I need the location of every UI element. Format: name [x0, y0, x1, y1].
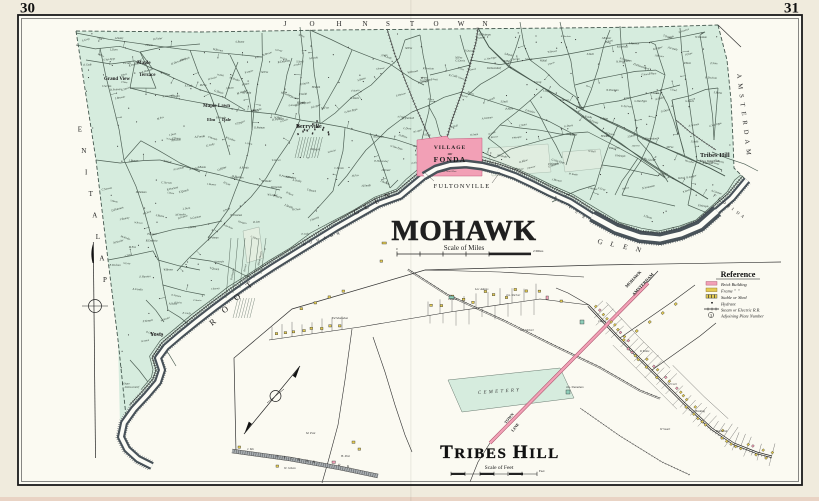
svg-text:D.Putman: D.Putman	[135, 191, 147, 194]
svg-text:Jno Shriver: Jno Shriver	[520, 328, 535, 332]
svg-text:Reference: Reference	[721, 270, 756, 279]
svg-text:Grand View: Grand View	[104, 77, 130, 82]
svg-text:A.Staley: A.Staley	[114, 37, 124, 40]
svg-text:Tribes Hill: Tribes Hill	[700, 152, 730, 159]
svg-text:J.Brower: J.Brower	[602, 37, 612, 40]
svg-text:M.Fox: M.Fox	[199, 84, 208, 87]
svg-text:Elm: Elm	[207, 117, 215, 122]
svg-text:D.Dievendorf: D.Dievendorf	[642, 137, 659, 140]
svg-text:M.Veeder: M.Veeder	[261, 180, 273, 183]
svg-text:FULTONVILLE: FULTONVILLE	[434, 183, 491, 190]
svg-text:Maple Lawn: Maple Lawn	[203, 104, 230, 109]
svg-text:C.Serven: C.Serven	[102, 85, 112, 88]
svg-text:A: A	[99, 255, 104, 263]
svg-text:W.Hall: W.Hall	[251, 110, 258, 113]
svg-text:D.Putman: D.Putman	[207, 237, 219, 240]
svg-text:TRIBES HILL: TRIBES HILL	[440, 442, 560, 463]
svg-text:S.Banta: S.Banta	[198, 166, 207, 169]
svg-text:Scale of Miles: Scale of Miles	[444, 244, 485, 252]
svg-text:N: N	[362, 20, 367, 28]
svg-text:J Plank: J Plank	[448, 297, 458, 301]
svg-text:M. Post: M. Post	[305, 431, 315, 435]
svg-text:A.Staley: A.Staley	[168, 303, 178, 306]
svg-text:J: J	[284, 20, 287, 28]
svg-text:See Detail Plan: See Detail Plan	[702, 160, 720, 163]
svg-text:S.Gray: S.Gray	[570, 133, 578, 136]
svg-text:S.Snell: S.Snell	[296, 61, 303, 64]
svg-text:H: H	[336, 20, 341, 28]
svg-text:C.Yates: C.Yates	[600, 117, 608, 120]
svg-text:W.Hall: W.Hall	[274, 117, 281, 120]
svg-text:F.Dygert: F.Dygert	[170, 95, 180, 98]
svg-text:3: 3	[710, 313, 712, 318]
svg-text:P.Nare: P.Nare	[683, 62, 692, 65]
svg-text:A.Fonda: A.Fonda	[131, 287, 143, 292]
svg-text:E.Cady: E.Cady	[300, 233, 310, 236]
svg-text:Bunschot: Bunschot	[716, 429, 727, 433]
svg-text:F.Starin: F.Starin	[650, 92, 660, 95]
svg-text:N: N	[81, 147, 86, 155]
svg-text:O: O	[309, 20, 314, 28]
svg-text:R.Docksta: R.Docksta	[704, 76, 717, 79]
svg-text:N: N	[482, 20, 487, 28]
svg-text:A.Fonda: A.Fonda	[241, 91, 252, 94]
svg-text:Ed Shanahan: Ed Shanahan	[331, 316, 349, 320]
svg-text:S.Gray: S.Gray	[123, 262, 131, 265]
svg-text:R.Docksta: R.Docksta	[560, 35, 572, 38]
svg-text:Loc Adams: Loc Adams	[474, 287, 489, 291]
svg-text:M Carr: M Carr	[667, 382, 678, 386]
svg-text:F.Dygert: F.Dygert	[146, 233, 156, 236]
svg-text:W.Hall: W.Hall	[504, 60, 511, 63]
svg-text:R.Docksta: R.Docksta	[270, 186, 282, 189]
svg-text:H.Clark: H.Clark	[644, 158, 655, 162]
svg-text:P.Nare: P.Nare	[504, 106, 514, 111]
svg-text:MOHAWK: MOHAWK	[391, 215, 536, 247]
svg-text:C.Serven: C.Serven	[621, 104, 633, 109]
svg-text:M.Fox: M.Fox	[260, 71, 269, 74]
svg-text:Feet: Feet	[539, 469, 545, 473]
svg-text:Berryville: Berryville	[296, 124, 322, 130]
svg-text:N.Vrooman: N.Vrooman	[229, 214, 242, 217]
svg-text:P: P	[103, 276, 107, 284]
svg-text:E: E	[78, 126, 82, 134]
svg-text:F.Dygert: F.Dygert	[309, 147, 320, 151]
svg-text:D.Dievendorf: D.Dievendorf	[486, 67, 502, 70]
svg-text:R.Docksta: R.Docksta	[108, 264, 121, 267]
svg-text:W.Brown: W.Brown	[560, 99, 570, 102]
svg-text:P.Nare: P.Nare	[709, 62, 718, 65]
svg-text:G.Davis: G.Davis	[685, 100, 694, 103]
svg-text:D.Dievendorf: D.Dievendorf	[373, 160, 390, 164]
svg-text:C.Serven: C.Serven	[334, 167, 344, 170]
svg-text:T: T	[89, 190, 94, 198]
svg-text:S.Snell: S.Snell	[501, 101, 508, 104]
svg-text:O: O	[433, 20, 438, 28]
svg-text:S.Snell: S.Snell	[587, 53, 594, 56]
svg-text:Hydrant: Hydrant	[720, 302, 736, 307]
svg-text:Terrace: Terrace	[139, 73, 156, 78]
svg-text:W.Hall: W.Hall	[540, 59, 547, 62]
svg-text:Frame ” ”: Frame ” ”	[720, 289, 740, 294]
svg-text:Dale: Dale	[222, 117, 231, 122]
svg-text:S.Gray: S.Gray	[231, 176, 239, 179]
svg-text:I.Yauney: I.Yauney	[628, 41, 640, 45]
svg-text:N.Vrooman: N.Vrooman	[694, 36, 707, 39]
svg-text:A.Fonda: A.Fonda	[396, 115, 406, 118]
svg-text:J. Mo: J. Mo	[247, 447, 254, 451]
svg-text:M.Fox: M.Fox	[128, 246, 137, 249]
svg-text:L: L	[96, 233, 100, 241]
svg-text:J.Smith: J.Smith	[298, 92, 307, 97]
svg-text:E.Cady: E.Cady	[184, 85, 194, 88]
svg-text:VILLAGE: VILLAGE	[434, 145, 466, 151]
svg-text:H.Smith: H.Smith	[311, 86, 321, 89]
svg-text:J Ryan: J Ryan	[598, 319, 607, 323]
svg-text:Stable or Shed: Stable or Shed	[721, 295, 747, 300]
svg-text:D.Dievendorf: D.Dievendorf	[124, 386, 141, 389]
svg-text:S.Gray: S.Gray	[525, 58, 533, 61]
svg-text:W.Hall: W.Hall	[678, 177, 686, 180]
svg-text:FONDA: FONDA	[434, 155, 467, 164]
svg-text:F.Starin: F.Starin	[640, 73, 650, 77]
svg-text:J.Dunn: J.Dunn	[145, 44, 153, 47]
svg-text:H.Clark: H.Clark	[291, 208, 301, 211]
svg-text:M.Fox: M.Fox	[666, 146, 675, 149]
svg-text:Yosts: Yosts	[150, 332, 164, 338]
svg-text:J.Brower: J.Brower	[381, 169, 391, 172]
svg-text:E.Cady: E.Cady	[122, 62, 132, 65]
svg-text:W.Brown: W.Brown	[164, 268, 174, 271]
svg-text:W Swart: W Swart	[660, 427, 670, 431]
svg-text:C.Serven: C.Serven	[161, 180, 172, 185]
svg-text:M.Fox: M.Fox	[404, 47, 413, 50]
svg-text:Jas. Shanahan: Jas. Shanahan	[566, 385, 584, 389]
svg-text:E.Cady: E.Cady	[181, 312, 191, 315]
svg-text:Brick Building: Brick Building	[721, 282, 748, 287]
svg-text:G.Van Epps: G.Van Epps	[635, 100, 647, 103]
svg-text:T.Quack: T.Quack	[465, 49, 475, 52]
svg-text:S.Banta: S.Banta	[235, 41, 244, 44]
svg-text:R.Docksta: R.Docksta	[145, 239, 158, 242]
svg-text:W.Brown: W.Brown	[272, 159, 282, 162]
svg-text:S.Gray: S.Gray	[534, 81, 542, 84]
svg-text:H. Post: H. Post	[340, 454, 350, 458]
svg-text:P.Wemple: P.Wemple	[213, 260, 225, 263]
svg-text:H.Smith: H.Smith	[296, 102, 306, 105]
svg-text:Steam or Electric R.R.: Steam or Electric R.R.	[721, 308, 760, 313]
svg-text:J.Dunn: J.Dunn	[172, 136, 181, 140]
svg-text:J.Brower: J.Brower	[513, 168, 524, 171]
svg-text:W: W	[458, 20, 465, 28]
svg-text:See Detail Plan: See Detail Plan	[442, 170, 458, 173]
svg-text:W. Gilson: W. Gilson	[284, 466, 296, 470]
svg-text:2 Miles: 2 Miles	[533, 249, 544, 253]
svg-text:Scale of Feet: Scale of Feet	[485, 464, 514, 471]
svg-text:M.Fox: M.Fox	[454, 56, 463, 59]
svg-text:N.Vrooman: N.Vrooman	[605, 89, 619, 92]
svg-text:H.Smith: H.Smith	[600, 135, 610, 138]
svg-text:A: A	[92, 212, 97, 220]
svg-text:A.Getman: A.Getman	[372, 135, 384, 138]
svg-text:Jos. Shriver: Jos. Shriver	[506, 293, 521, 297]
svg-text:G.Davis: G.Davis	[350, 97, 359, 100]
svg-text:Adjoining Plate Number: Adjoining Plate Number	[720, 314, 764, 319]
svg-text:S: S	[386, 20, 390, 28]
svg-text:R.Docksta: R.Docksta	[422, 67, 435, 70]
svg-text:Maple: Maple	[137, 61, 151, 66]
svg-text:F.Starin: F.Starin	[422, 133, 432, 136]
svg-text:D.Putman: D.Putman	[253, 126, 265, 129]
svg-text:A.Fonda: A.Fonda	[239, 167, 250, 170]
svg-text:J.Smith: J.Smith	[691, 141, 699, 144]
svg-text:Hosking: Hosking	[694, 409, 705, 413]
svg-text:F.Starin: F.Starin	[192, 299, 202, 302]
svg-text:P.Nare: P.Nare	[427, 98, 435, 102]
svg-text:R.Docksta: R.Docksta	[616, 46, 628, 49]
svg-text:J.Brower: J.Brower	[632, 145, 641, 147]
svg-text:30: 30	[20, 1, 35, 17]
svg-text:31: 31	[784, 1, 799, 17]
svg-text:J.Brower: J.Brower	[129, 159, 139, 162]
svg-text:D Kline: D Kline	[639, 349, 650, 353]
svg-text:C.Serven: C.Serven	[510, 58, 520, 62]
svg-text:L.Dorn: L.Dorn	[109, 48, 118, 51]
